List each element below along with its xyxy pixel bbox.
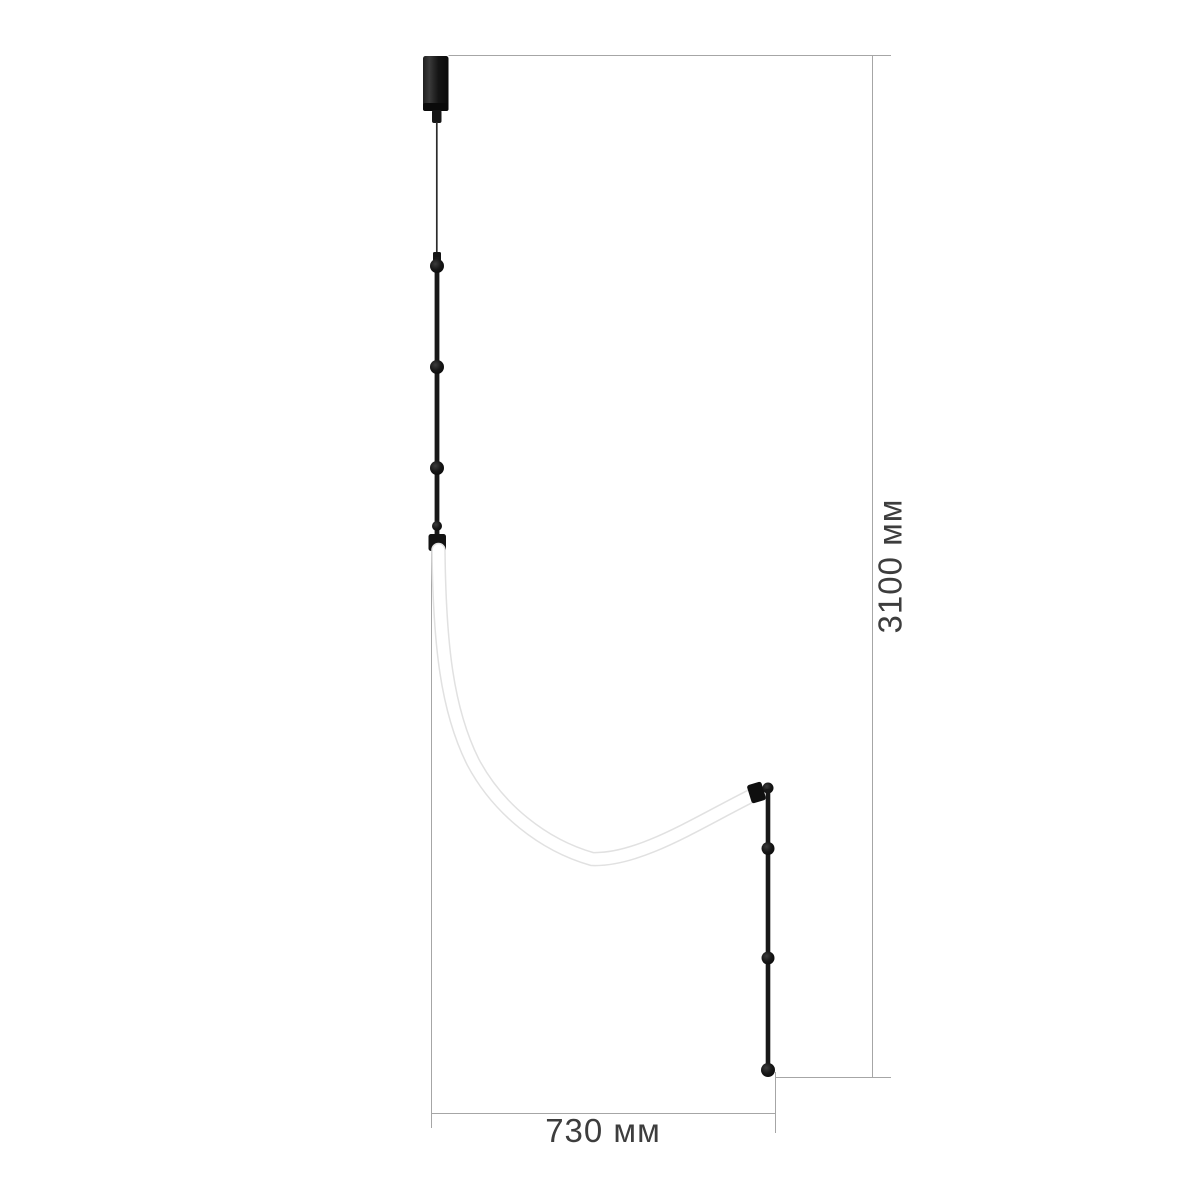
rod-bead-sphere	[430, 360, 444, 374]
rod-bead-sphere-small	[432, 521, 442, 531]
pendant-lamp-figure	[423, 56, 775, 1077]
rod-bead-sphere	[430, 461, 444, 475]
product-dimension-image: 3100 мм 730 мм	[0, 0, 1200, 1200]
lower-rod-bottom-ball	[761, 1063, 775, 1077]
canopy-cable-gland	[432, 110, 442, 123]
ceiling-canopy	[423, 56, 449, 111]
lower-rod	[766, 789, 771, 1071]
rod-bead-sphere	[430, 259, 444, 273]
led-flex-tube	[439, 550, 758, 859]
rod-bead-sphere	[762, 952, 775, 965]
lamp-diagram-canvas: 3100 мм 730 мм	[0, 0, 1200, 1200]
canopy-bottom-rim	[423, 103, 449, 111]
width-dimension-label: 730 мм	[545, 1112, 661, 1149]
dimension-annotations: 3100 мм 730 мм	[432, 56, 909, 1150]
rod-bead-sphere	[762, 842, 775, 855]
height-dimension-label: 3100 мм	[872, 499, 909, 634]
upper-rod	[435, 257, 440, 537]
